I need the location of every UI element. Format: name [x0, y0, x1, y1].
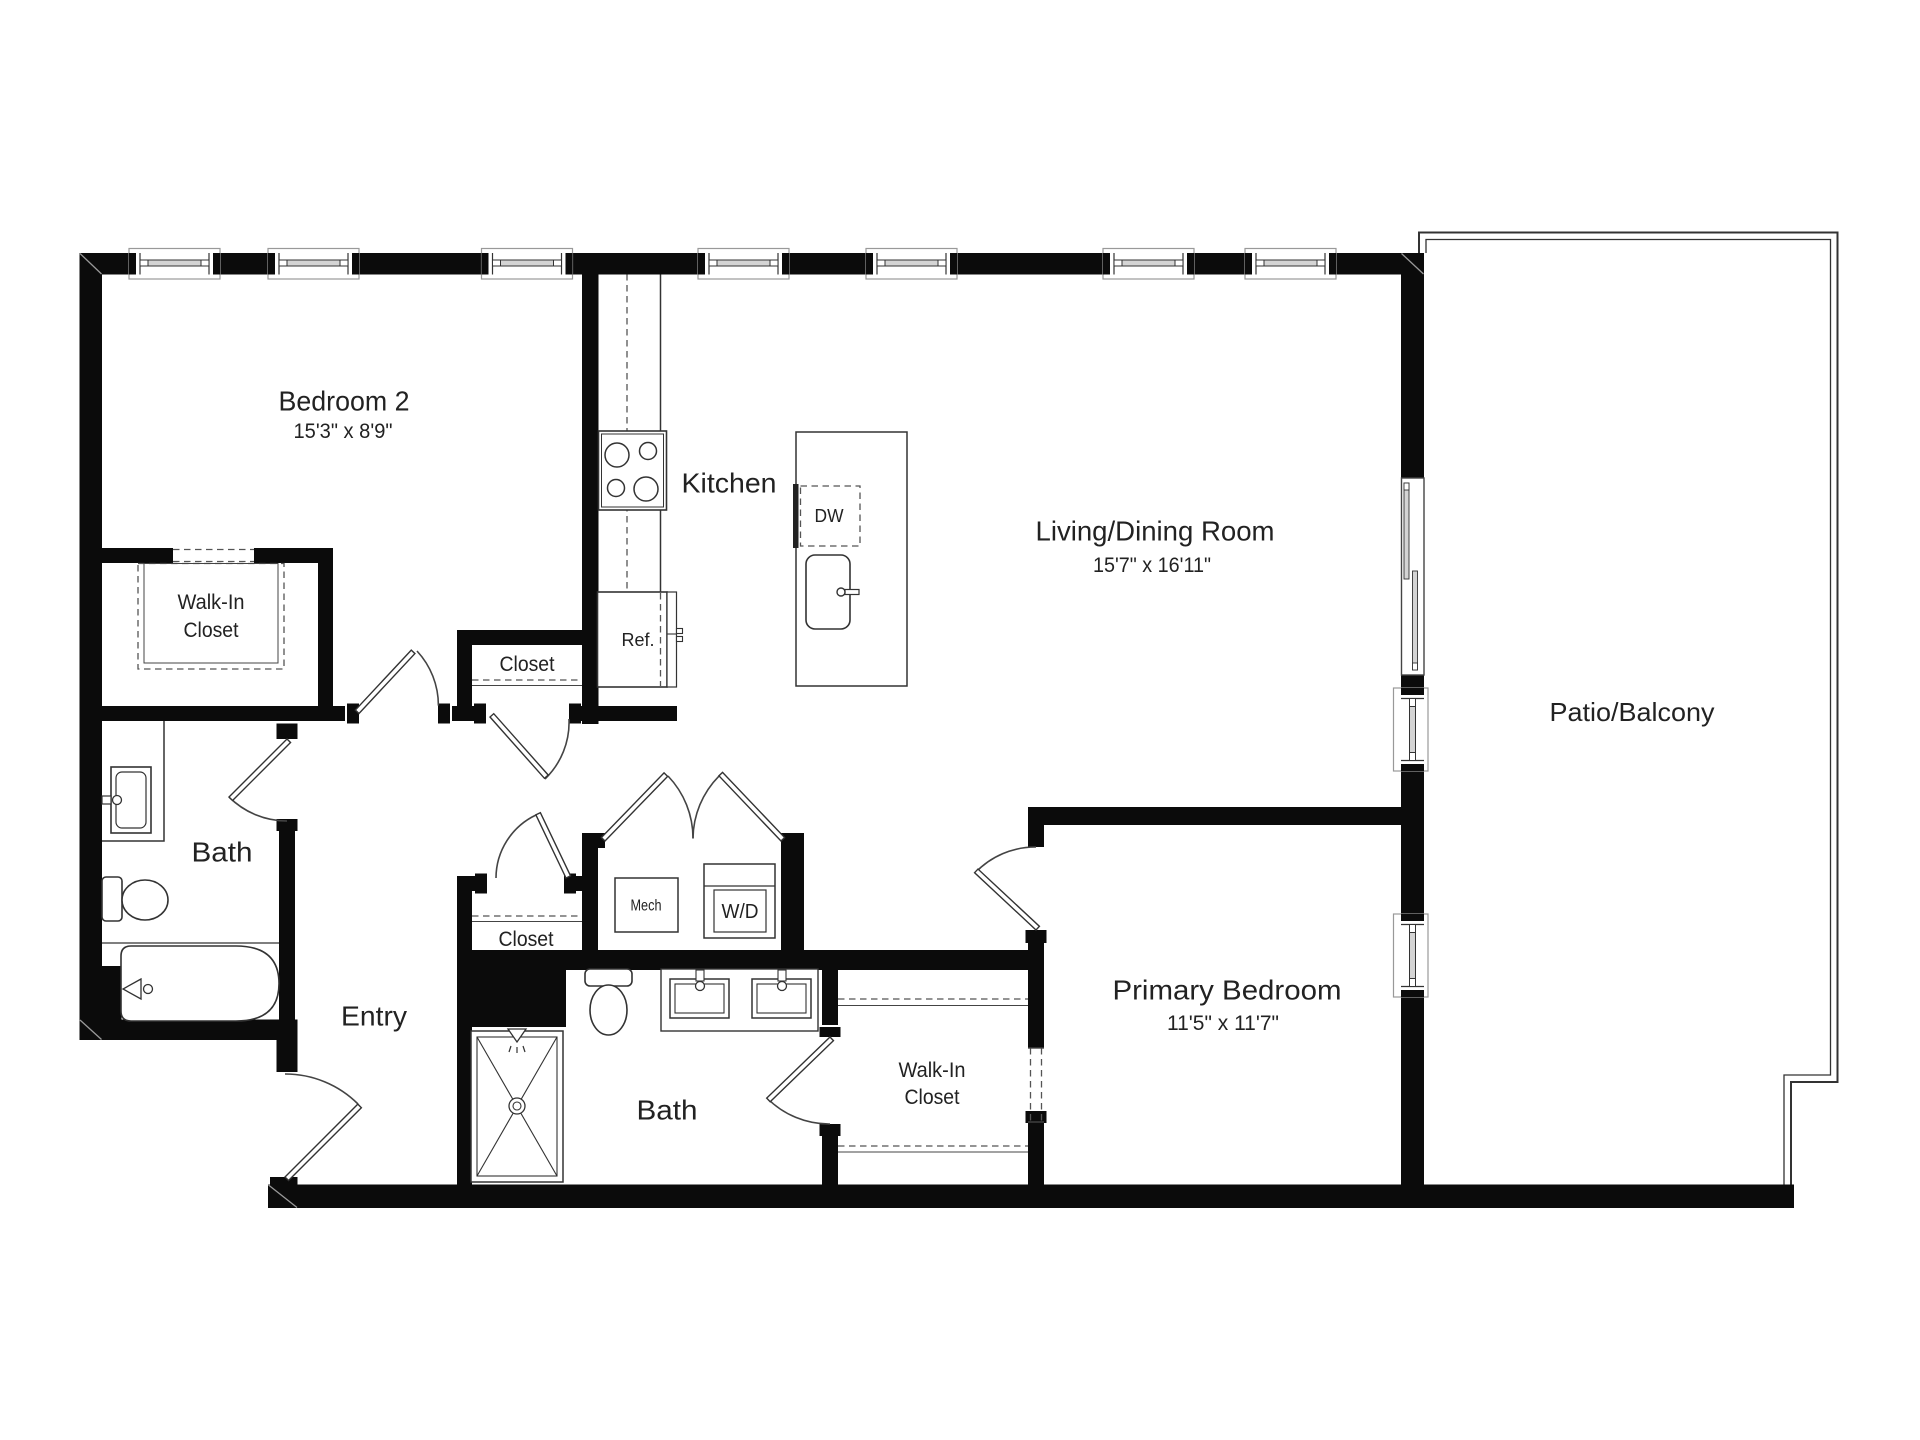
svg-text:Ref.: Ref. [622, 630, 655, 650]
svg-text:Living/Dining Room: Living/Dining Room [1036, 516, 1275, 547]
svg-text:15'3" x 8'9": 15'3" x 8'9" [294, 419, 393, 443]
svg-text:Entry: Entry [341, 1001, 407, 1032]
svg-text:Kitchen: Kitchen [682, 468, 777, 499]
svg-text:Patio/Balcony: Patio/Balcony [1550, 697, 1715, 727]
svg-text:Walk-In: Walk-In [899, 1058, 966, 1082]
svg-text:11'5" x 11'7": 11'5" x 11'7" [1167, 1011, 1279, 1035]
svg-text:DW: DW [815, 506, 844, 526]
svg-text:Closet: Closet [500, 652, 555, 676]
svg-text:Closet: Closet [184, 618, 239, 642]
svg-text:Primary Bedroom: Primary Bedroom [1113, 975, 1342, 1006]
svg-text:W/D: W/D [722, 901, 759, 923]
svg-text:15'7" x 16'11": 15'7" x 16'11" [1093, 553, 1211, 577]
svg-text:Bath: Bath [637, 1095, 698, 1126]
svg-text:Bedroom 2: Bedroom 2 [279, 386, 410, 417]
svg-text:Walk-In: Walk-In [178, 590, 245, 614]
svg-text:Closet: Closet [905, 1085, 960, 1109]
svg-text:Mech: Mech [631, 898, 662, 915]
svg-text:Closet: Closet [499, 927, 554, 951]
svg-text:Bath: Bath [192, 837, 253, 868]
